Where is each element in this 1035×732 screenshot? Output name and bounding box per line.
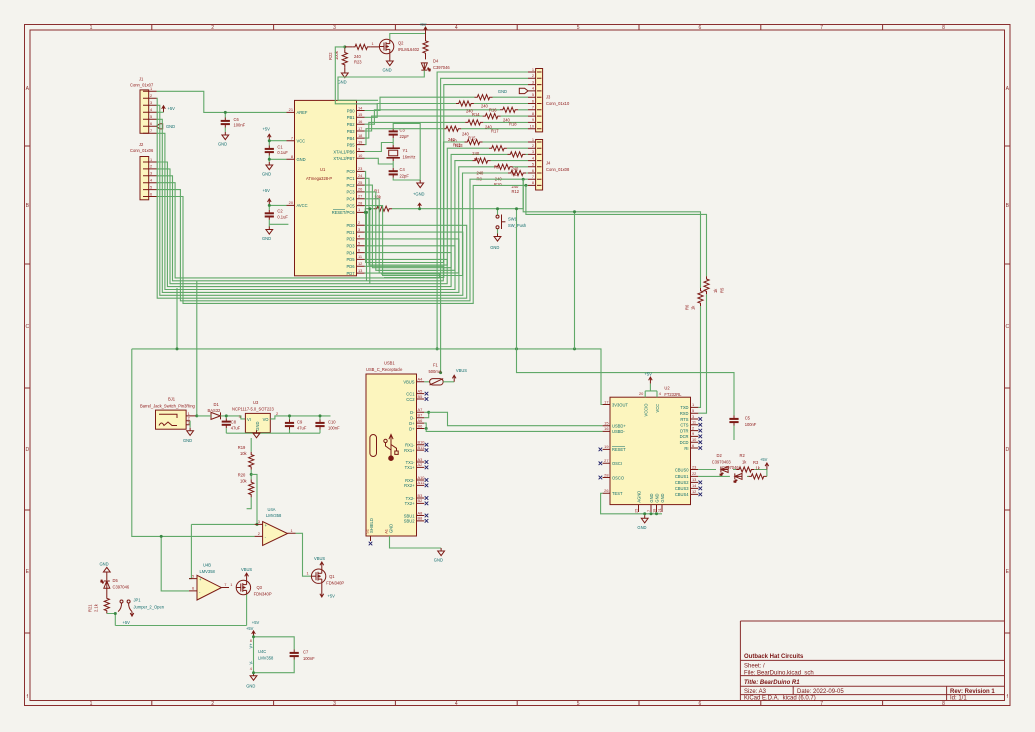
svg-text:1: 1	[532, 137, 534, 142]
svg-text:4: 4	[455, 25, 458, 31]
svg-text:+5V: +5V	[760, 457, 768, 462]
svg-text:CBUS0: CBUS0	[675, 467, 689, 472]
svg-text:Conn_01x06: Conn_01x06	[130, 148, 154, 153]
svg-text:C: C	[25, 324, 29, 330]
svg-text:5: 5	[532, 92, 534, 97]
svg-text:IRLML6402: IRLML6402	[398, 47, 420, 52]
svg-text:V-: V-	[248, 660, 253, 665]
svg-text:13: 13	[692, 477, 696, 482]
svg-text:3: 3	[358, 227, 360, 232]
svg-text:3: 3	[150, 171, 152, 176]
svg-text:A6: A6	[418, 418, 423, 423]
svg-text:8: 8	[942, 701, 945, 707]
svg-text:D-: D-	[410, 416, 415, 421]
svg-text:28: 28	[358, 200, 362, 205]
svg-text:PC4: PC4	[347, 197, 356, 202]
svg-text:J4: J4	[546, 161, 551, 166]
svg-text:BJ1: BJ1	[168, 396, 176, 401]
svg-text:D+: D+	[409, 426, 415, 431]
svg-text:U4B: U4B	[203, 563, 211, 568]
svg-text:OSCO: OSCO	[612, 475, 624, 480]
svg-text:C397046: C397046	[113, 585, 130, 590]
svg-text:6: 6	[150, 121, 152, 126]
svg-text:J1: J1	[139, 77, 144, 82]
svg-text:6: 6	[692, 443, 694, 448]
svg-text:2: 2	[532, 143, 534, 148]
svg-text:TX2+: TX2+	[405, 501, 416, 506]
svg-text:PD4: PD4	[347, 250, 356, 255]
svg-text:22pF: 22pF	[400, 134, 410, 139]
svg-text:PB0: PB0	[347, 108, 355, 113]
svg-text:VBUS: VBUS	[241, 567, 252, 572]
svg-text:+5V: +5V	[263, 126, 271, 131]
svg-text:10k: 10k	[240, 451, 248, 456]
svg-text:DTR: DTR	[680, 428, 688, 433]
svg-text:S1: S1	[365, 529, 370, 534]
svg-text:26: 26	[358, 187, 362, 192]
svg-text:2: 2	[692, 425, 694, 430]
svg-text:C3970403: C3970403	[712, 459, 732, 464]
svg-text:Rev: Revision 1: Rev: Revision 1	[950, 689, 995, 695]
svg-text:TX2-: TX2-	[406, 496, 416, 501]
svg-text:3: 3	[258, 519, 260, 524]
svg-text:JP1: JP1	[134, 598, 142, 603]
svg-text:+GND: +GND	[413, 191, 425, 196]
svg-text:2: 2	[358, 220, 360, 225]
svg-text:A4: A4	[418, 377, 424, 382]
svg-text:1: 1	[372, 41, 374, 46]
svg-text:DCR: DCR	[680, 434, 689, 439]
svg-text:GND: GND	[490, 245, 499, 250]
svg-text:PC3: PC3	[347, 190, 356, 195]
svg-text:NCP1117-5.0_SOT223: NCP1117-5.0_SOT223	[232, 407, 274, 412]
svg-text:TX1-: TX1-	[406, 460, 416, 465]
svg-text:Conn_01x07: Conn_01x07	[130, 82, 154, 87]
svg-text:GND: GND	[383, 68, 392, 73]
svg-text:Jumper_2_Open: Jumper_2_Open	[134, 605, 165, 610]
svg-text:J2: J2	[139, 142, 144, 147]
svg-text:7: 7	[820, 701, 823, 707]
svg-text:A3: A3	[418, 457, 423, 462]
svg-text:PD6: PD6	[347, 264, 356, 269]
svg-text:+5V: +5V	[419, 22, 427, 27]
svg-text:V+: V+	[248, 643, 253, 649]
svg-text:U4A: U4A	[268, 507, 276, 512]
svg-text:8: 8	[532, 180, 534, 185]
svg-text:BAS32: BAS32	[208, 408, 221, 413]
svg-text:+5V: +5V	[246, 626, 254, 631]
svg-text:7: 7	[291, 136, 293, 141]
svg-text:R22: R22	[328, 52, 333, 60]
svg-text:100nF: 100nF	[303, 656, 315, 661]
svg-text:R18: R18	[509, 122, 517, 127]
svg-text:1: 1	[291, 528, 293, 533]
svg-text:2: 2	[258, 531, 260, 536]
svg-text:VCC: VCC	[297, 139, 306, 144]
svg-text:18: 18	[358, 133, 362, 138]
svg-text:R14: R14	[472, 112, 480, 117]
svg-text:7: 7	[532, 174, 534, 179]
svg-text:B8: B8	[418, 516, 423, 521]
svg-text:PC0: PC0	[347, 169, 356, 174]
svg-text:1: 1	[532, 67, 534, 72]
svg-text:10k: 10k	[240, 478, 248, 483]
svg-text:R20: R20	[238, 472, 246, 477]
svg-text:Size: A3: Size: A3	[744, 689, 767, 695]
svg-text:6: 6	[699, 701, 702, 707]
svg-text:Q1: Q1	[329, 574, 335, 579]
svg-text:PD2: PD2	[347, 237, 356, 242]
svg-text:28: 28	[604, 472, 608, 477]
svg-text:CTS: CTS	[680, 423, 688, 428]
svg-text:R10: R10	[494, 182, 502, 187]
svg-text:RX1-: RX1-	[405, 443, 415, 448]
svg-text:3: 3	[692, 414, 694, 419]
svg-text:3: 3	[188, 420, 190, 425]
svg-text:ATmega328-P: ATmega328-P	[306, 176, 332, 181]
svg-text:D+: D+	[409, 421, 415, 426]
svg-text:12: 12	[692, 489, 696, 494]
svg-text:File: BearDuino.kicad_sch: File: BearDuino.kicad_sch	[744, 670, 814, 676]
svg-text:+5V: +5V	[252, 620, 260, 625]
svg-text:8: 8	[291, 154, 293, 159]
svg-text:3V3OUT: 3V3OUT	[612, 402, 628, 407]
svg-text:VBUS: VBUS	[314, 556, 325, 561]
svg-text:7: 7	[224, 582, 226, 587]
svg-text:R16: R16	[489, 108, 497, 113]
svg-text:R2: R2	[740, 453, 746, 458]
svg-text:A7: A7	[418, 407, 423, 412]
svg-text:FDN340P: FDN340P	[254, 592, 272, 597]
svg-text:Id: 1/1: Id: 1/1	[950, 696, 967, 702]
svg-text:6: 6	[358, 247, 360, 252]
svg-text:U1: U1	[320, 167, 326, 172]
svg-text:CBUS3: CBUS3	[675, 486, 689, 491]
svg-text:RI: RI	[684, 446, 688, 451]
svg-text:C1: C1	[277, 144, 283, 149]
svg-text:GND: GND	[660, 493, 665, 502]
svg-text:A11: A11	[418, 480, 425, 485]
svg-text:+5V: +5V	[328, 593, 336, 598]
svg-text:PD0: PD0	[347, 223, 356, 228]
svg-text:Conn_01x10: Conn_01x10	[546, 101, 570, 106]
svg-text:RX2-: RX2-	[405, 478, 415, 483]
svg-text:USBD-: USBD-	[612, 429, 625, 434]
svg-text:18: 18	[651, 509, 656, 513]
svg-text:16: 16	[358, 119, 362, 124]
svg-text:240: 240	[512, 184, 520, 189]
svg-text:Q2: Q2	[398, 41, 404, 46]
svg-text:9: 9	[358, 146, 360, 151]
svg-text:21: 21	[289, 107, 293, 112]
svg-text:PD3: PD3	[347, 244, 356, 249]
svg-text:RESET/PC6: RESET/PC6	[332, 210, 355, 215]
svg-text:240: 240	[472, 151, 480, 156]
svg-text:GND: GND	[262, 172, 271, 177]
svg-text:11: 11	[692, 420, 696, 425]
svg-text:LMV358: LMV358	[200, 569, 216, 574]
svg-text:7: 7	[150, 128, 152, 133]
svg-text:R5: R5	[720, 287, 725, 293]
svg-text:CC1: CC1	[406, 391, 415, 396]
svg-text:0.1uF: 0.1uF	[277, 214, 288, 219]
svg-text:R12: R12	[512, 189, 520, 194]
svg-text:19: 19	[604, 444, 608, 449]
svg-text:16mHz: 16mHz	[403, 154, 416, 159]
svg-text:240: 240	[448, 137, 456, 142]
svg-text:VI: VI	[247, 417, 251, 422]
svg-text:R21: R21	[88, 604, 93, 612]
svg-text:TX1+: TX1+	[405, 465, 416, 470]
svg-text:PB4: PB4	[347, 136, 355, 141]
svg-text:PB2: PB2	[347, 122, 355, 127]
svg-text:D1: D1	[214, 402, 220, 407]
svg-text:2: 2	[150, 164, 152, 169]
svg-text:+5V: +5V	[645, 371, 653, 376]
svg-text:25: 25	[358, 180, 362, 185]
svg-text:GND: GND	[637, 525, 646, 530]
svg-text:3: 3	[333, 701, 336, 707]
svg-text:C10: C10	[328, 419, 336, 424]
svg-text:2: 2	[211, 701, 214, 707]
svg-text:2: 2	[211, 25, 214, 31]
svg-text:U2: U2	[664, 385, 670, 390]
svg-text:F1: F1	[433, 362, 439, 367]
svg-text:5: 5	[192, 573, 194, 578]
svg-text:27: 27	[604, 458, 608, 463]
svg-text:C6: C6	[234, 117, 240, 122]
svg-text:13: 13	[358, 268, 362, 273]
svg-text:A5: A5	[418, 388, 423, 393]
svg-text:GND: GND	[183, 438, 192, 443]
svg-text:B2: B2	[418, 498, 423, 503]
svg-text:VCC: VCC	[655, 404, 660, 413]
svg-text:1: 1	[90, 701, 93, 707]
svg-text:GND: GND	[218, 142, 227, 147]
svg-text:12: 12	[358, 261, 362, 266]
svg-text:GND: GND	[297, 157, 306, 162]
svg-text:PD1: PD1	[347, 230, 356, 235]
svg-text:+5V: +5V	[123, 620, 131, 625]
svg-text:C9: C9	[297, 419, 303, 424]
svg-text:9: 9	[692, 431, 694, 436]
svg-text:TEST: TEST	[612, 491, 623, 496]
svg-text:GND: GND	[100, 562, 109, 567]
svg-text:C8: C8	[231, 419, 237, 424]
svg-text:23: 23	[358, 166, 362, 171]
svg-text:GND: GND	[649, 493, 654, 502]
svg-text:26: 26	[604, 488, 608, 493]
svg-text:R7: R7	[474, 157, 480, 162]
svg-text:AREF: AREF	[297, 110, 308, 115]
svg-text:CC2: CC2	[406, 397, 415, 402]
svg-text:TXD: TXD	[680, 405, 688, 410]
svg-text:R9: R9	[494, 164, 500, 169]
svg-text:PD5: PD5	[347, 257, 356, 262]
svg-text:GND: GND	[498, 89, 507, 94]
svg-text:C5: C5	[745, 416, 751, 421]
svg-text:8: 8	[250, 638, 252, 643]
svg-text:3: 3	[532, 149, 534, 154]
svg-text:C7: C7	[303, 649, 309, 654]
svg-text:RXD: RXD	[680, 411, 689, 416]
svg-text:C397046: C397046	[722, 465, 739, 470]
svg-text:3: 3	[239, 414, 241, 419]
svg-text:D-: D-	[410, 410, 415, 415]
svg-text:XTAL1/PB6: XTAL1/PB6	[333, 149, 355, 154]
svg-text:R19: R19	[238, 445, 246, 450]
svg-text:1: 1	[90, 25, 93, 31]
svg-text:J3: J3	[546, 95, 551, 100]
svg-text:5: 5	[358, 241, 360, 246]
svg-text:C397046: C397046	[433, 65, 450, 70]
svg-text:R13: R13	[453, 143, 461, 148]
svg-text:SHIELD: SHIELD	[369, 518, 374, 533]
svg-text:3: 3	[532, 79, 534, 84]
svg-text:240: 240	[354, 54, 362, 59]
svg-text:USB_C_Receptacle: USB_C_Receptacle	[366, 367, 403, 372]
svg-text:4: 4	[455, 701, 458, 707]
svg-text:1: 1	[230, 582, 232, 587]
svg-text:CBUS2: CBUS2	[675, 480, 689, 485]
svg-text:GND: GND	[434, 558, 443, 563]
svg-text:RTS: RTS	[680, 417, 688, 422]
svg-text:U3: U3	[253, 400, 259, 405]
svg-text:15: 15	[604, 421, 608, 426]
svg-text:22: 22	[692, 471, 696, 476]
svg-text:C: C	[1005, 324, 1009, 330]
svg-text:B7: B7	[418, 413, 423, 418]
svg-text:11: 11	[358, 254, 362, 259]
svg-text:0.1uF: 0.1uF	[277, 150, 288, 155]
svg-text:PC2: PC2	[347, 183, 356, 188]
svg-text:2.1k: 2.1k	[94, 603, 99, 612]
svg-text:VBUS: VBUS	[456, 368, 467, 373]
svg-text:500mA: 500mA	[429, 369, 442, 374]
svg-text:5: 5	[692, 408, 694, 413]
svg-text:22pF: 22pF	[400, 174, 410, 179]
svg-text:KiCad E.D.A. kicad (6.0.7): KiCad E.D.A. kicad (6.0.7)	[744, 696, 816, 702]
svg-text:Q3: Q3	[257, 585, 263, 590]
svg-text:100nF: 100nF	[234, 123, 246, 128]
svg-text:8: 8	[532, 111, 534, 116]
svg-text:6: 6	[532, 98, 534, 103]
svg-text:R11: R11	[512, 172, 520, 177]
svg-text:Y1: Y1	[403, 148, 409, 153]
svg-text:RESET: RESET	[612, 447, 626, 452]
svg-text:15: 15	[358, 112, 362, 117]
svg-text:PB3: PB3	[347, 129, 355, 134]
svg-text:6: 6	[150, 191, 152, 196]
svg-text:1: 1	[692, 402, 694, 407]
svg-text:R23: R23	[354, 60, 362, 65]
svg-text:+5V: +5V	[263, 188, 271, 193]
svg-text:SW_Push: SW_Push	[508, 223, 527, 228]
svg-text:VCCIO: VCCIO	[643, 404, 648, 417]
svg-text:27: 27	[358, 194, 362, 199]
svg-text:B10: B10	[418, 440, 426, 445]
svg-text:D4: D4	[433, 58, 439, 63]
svg-text:6: 6	[192, 586, 194, 591]
svg-text:C3: C3	[400, 127, 406, 132]
svg-text:PB5: PB5	[347, 142, 355, 147]
svg-text:D2: D2	[717, 453, 723, 458]
svg-text:A8: A8	[418, 510, 423, 515]
svg-text:23: 23	[692, 464, 696, 469]
svg-text:A10: A10	[418, 475, 426, 480]
svg-text:GND: GND	[166, 124, 175, 129]
svg-text:SBU1: SBU1	[404, 513, 415, 518]
svg-text:VO: VO	[263, 417, 269, 422]
svg-text:D: D	[1005, 447, 1009, 453]
svg-text:16: 16	[604, 426, 608, 431]
svg-text:LMV358: LMV358	[266, 513, 282, 518]
svg-text:FDN340P: FDN340P	[326, 580, 344, 585]
svg-text:PB1: PB1	[347, 115, 355, 120]
svg-text:Date: 2022-09-05: Date: 2022-09-05	[797, 689, 844, 695]
svg-text:CBUS4: CBUS4	[675, 492, 689, 497]
svg-text:7: 7	[820, 25, 823, 31]
svg-text:A1: A1	[384, 529, 389, 534]
svg-text:USB1: USB1	[384, 361, 395, 366]
svg-text:2: 2	[532, 73, 534, 78]
svg-text:LMV358: LMV358	[258, 655, 274, 660]
svg-text:SBU2: SBU2	[404, 519, 415, 524]
svg-text:DCD: DCD	[680, 440, 689, 445]
svg-text:USBD+: USBD+	[612, 424, 626, 429]
svg-text:7: 7	[532, 105, 534, 110]
svg-text:1: 1	[358, 207, 360, 212]
svg-text:Conn_01x08: Conn_01x08	[546, 167, 570, 172]
svg-text:100nF: 100nF	[745, 422, 757, 427]
svg-text:FT232RL: FT232RL	[664, 392, 682, 397]
svg-text:XTAL2/PB7: XTAL2/PB7	[333, 156, 355, 161]
svg-text:47uF: 47uF	[297, 425, 307, 430]
svg-text:D: D	[25, 447, 29, 453]
svg-text:Sheet: /: Sheet: /	[744, 664, 765, 670]
svg-text:5: 5	[577, 25, 580, 31]
svg-text:Title: BearDuino R1: Title: BearDuino R1	[744, 680, 800, 686]
svg-text:GND: GND	[246, 684, 255, 689]
svg-text:R1: R1	[374, 188, 380, 193]
svg-text:B11: B11	[418, 445, 425, 450]
svg-text:B3: B3	[418, 493, 423, 498]
svg-text:Barrel_Jack_Switch_Pin3Ring: Barrel_Jack_Switch_Pin3Ring	[140, 403, 196, 408]
svg-text:RX1+: RX1+	[404, 448, 415, 453]
svg-text:17: 17	[604, 399, 608, 404]
svg-text:1: 1	[307, 571, 309, 576]
svg-text:2: 2	[150, 93, 152, 98]
svg-text:GND: GND	[262, 236, 271, 241]
svg-text:240: 240	[481, 104, 489, 109]
svg-text:5: 5	[150, 114, 152, 119]
svg-text:17: 17	[358, 126, 362, 131]
svg-text:PC5: PC5	[347, 203, 356, 208]
svg-text:VBUS: VBUS	[403, 380, 414, 385]
svg-text:PC1: PC1	[347, 176, 356, 181]
svg-text:1: 1	[150, 157, 152, 162]
svg-text:OSCI: OSCI	[612, 461, 622, 466]
svg-text:RX2+: RX2+	[404, 483, 415, 488]
svg-text:D5: D5	[113, 578, 119, 583]
svg-text:6: 6	[532, 168, 534, 173]
svg-text:GND: GND	[338, 80, 347, 85]
svg-text:5: 5	[532, 162, 534, 167]
svg-text:AVCC: AVCC	[297, 203, 308, 208]
svg-text:GND: GND	[255, 422, 260, 431]
svg-text:2: 2	[276, 411, 278, 416]
svg-text:R17: R17	[491, 129, 499, 134]
